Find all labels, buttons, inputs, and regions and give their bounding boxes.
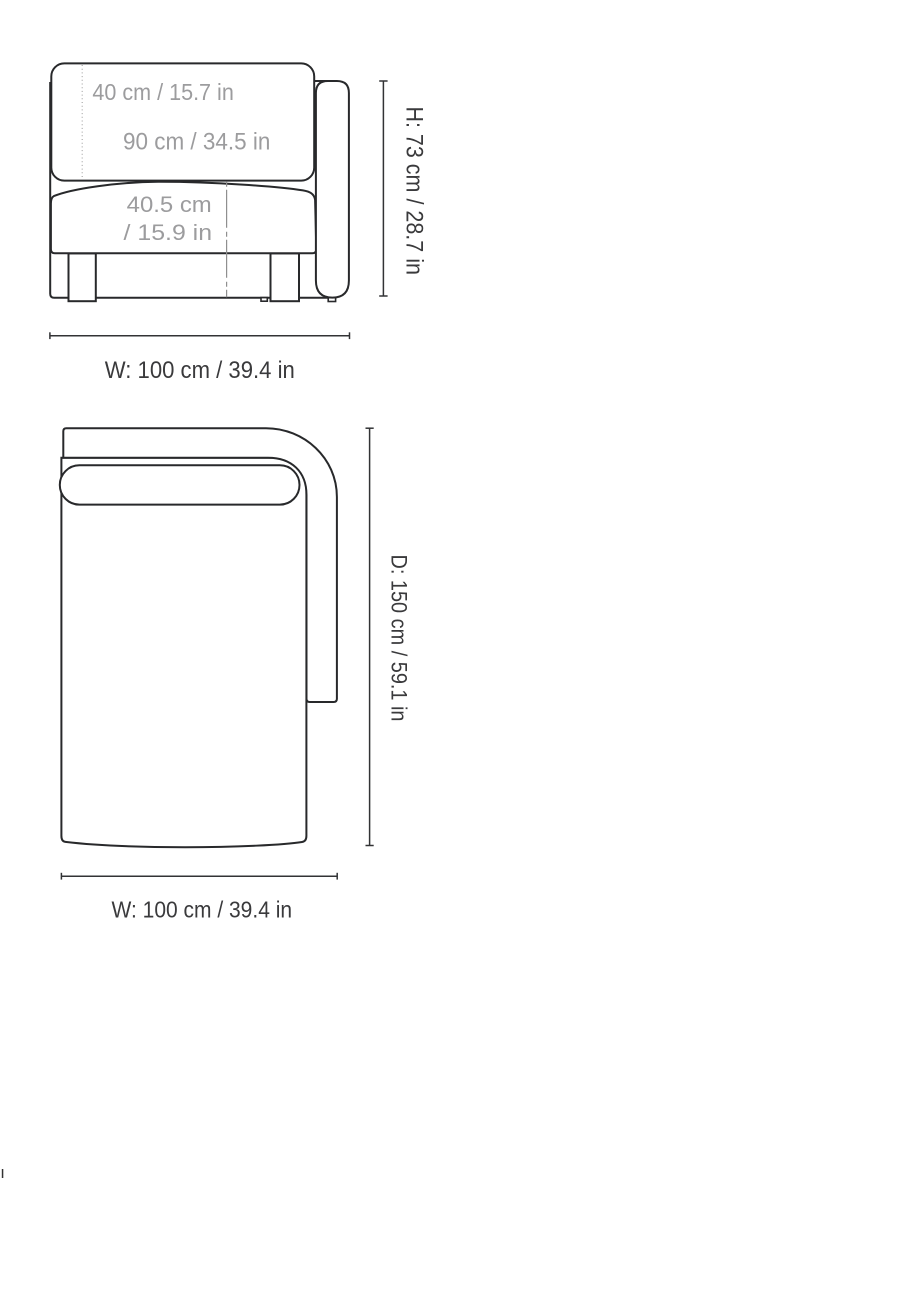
svg-text:H: 73 cm / 28.7 in: H: 73 cm / 28.7 in [401, 106, 428, 275]
svg-text:W: 100 cm / 39.4 in: W: 100 cm / 39.4 in [112, 897, 293, 923]
svg-text:W: 100 cm / 39.4 in: W: 100 cm / 39.4 in [105, 357, 295, 384]
svg-text:/ 15.9 in: / 15.9 in [124, 220, 213, 245]
svg-text:40.5 cm: 40.5 cm [127, 192, 212, 217]
svg-text:40 cm / 15.7 in: 40 cm / 15.7 in [92, 79, 234, 105]
svg-text:90 cm / 34.5 in: 90 cm / 34.5 in [123, 129, 271, 156]
svg-text:D: 150 cm / 59.1 in: D: 150 cm / 59.1 in [387, 555, 412, 722]
